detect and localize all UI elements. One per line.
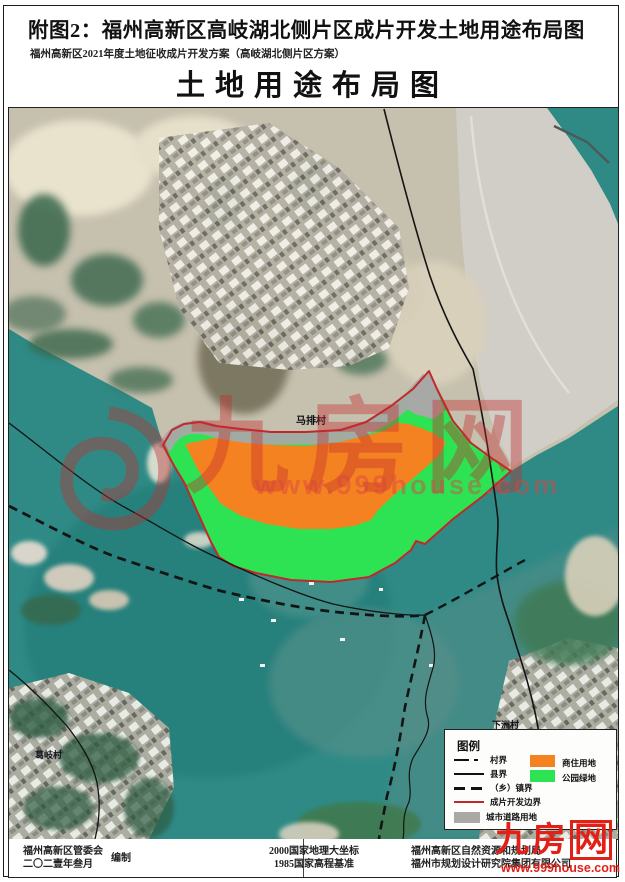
land-use-map: 马排村 葛岐村 下洲村 九房网 www.999house.com 图例 村界 县…: [8, 107, 619, 840]
footer-datum-line1: 2000国家地理大坐标: [249, 845, 379, 858]
map-title: 土地用途布局图: [0, 62, 625, 104]
footer-datum-block: 2000国家地理大坐标 1985国家高程基准: [249, 845, 379, 871]
legend-label: 成片开发边界: [490, 796, 541, 808]
dash-dot-line-sample: [454, 759, 484, 761]
legend-item-urban-road: 城市道路用地: [454, 811, 537, 823]
footer-institute: 福州市规划设计研究院集团有限公司: [411, 858, 611, 871]
legend-item-county-boundary: 县界: [454, 768, 507, 780]
footer-date: 二〇二壹年叁月: [23, 858, 103, 871]
village-label-mapai: 马排村: [296, 412, 326, 427]
legend-label-park: 公园绿地: [562, 772, 596, 784]
red-line-sample: [454, 801, 484, 804]
legend-label: 城市道路用地: [486, 811, 537, 823]
footer-bar: 福州高新区管委会 二〇二壹年叁月 编制 2000国家地理大坐标 1985国家高程…: [8, 839, 617, 878]
legend-label: 村界: [490, 754, 507, 766]
legend-item-village-boundary: 村界: [454, 754, 507, 766]
legend-label: 县界: [490, 768, 507, 780]
page-subtitle: 福州高新区2021年度土地征收成片开发方案（高岐湖北侧片区方案）: [30, 46, 345, 61]
legend-title: 图例: [457, 738, 480, 754]
footer-datum-line2: 1985国家高程基准: [249, 858, 379, 871]
page-title: 附图2：福州高新区高岐湖北侧片区成片开发土地用途布局图: [28, 13, 608, 43]
legend: 图例 村界 县界 （乡）镇界 成片开发边界 城市道路用地 商住用地 公园绿地: [444, 729, 617, 830]
footer-org: 福州高新区管委会: [23, 845, 103, 858]
legend-item-development-boundary: 成片开发边界: [454, 796, 541, 808]
legend-label-commercial: 商住用地: [562, 757, 596, 769]
green-swatch: [530, 770, 555, 782]
legend-item-township-boundary: （乡）镇界: [454, 782, 533, 794]
footer-left-block: 福州高新区管委会 二〇二壹年叁月: [23, 845, 103, 871]
footer-bureau: 福州高新区自然资源和规划局: [411, 845, 611, 858]
legend-label: （乡）镇界: [490, 782, 533, 794]
orange-swatch: [530, 755, 555, 767]
footer-right-block: 福州高新区自然资源和规划局 福州市规划设计研究院集团有限公司: [411, 845, 611, 871]
footer-role: 编制: [111, 852, 131, 865]
solid-line-sample: [454, 773, 484, 776]
village-label-geqi: 葛岐村: [35, 748, 62, 761]
dashed-line-sample: [454, 787, 484, 790]
gray-swatch: [454, 812, 480, 823]
